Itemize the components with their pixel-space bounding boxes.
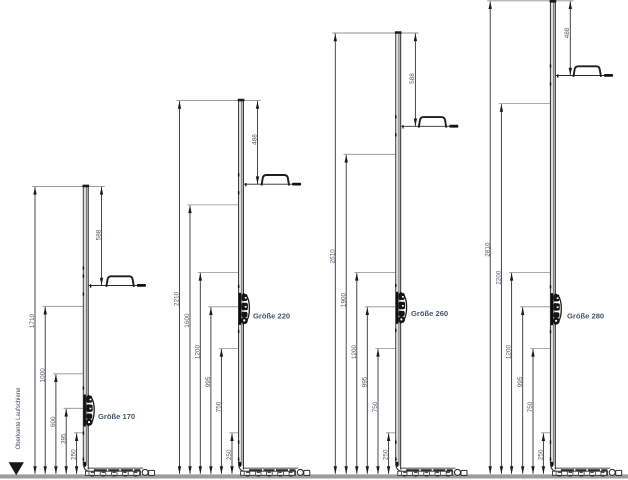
svg-text:600: 600 [50,416,57,427]
svg-text:995: 995 [361,376,368,387]
svg-text:488: 488 [564,27,571,38]
svg-text:2810: 2810 [484,242,491,257]
svg-text:Größe 220: Größe 220 [253,312,290,321]
svg-text:Größe 280: Größe 280 [567,312,604,321]
svg-text:250: 250 [226,449,233,460]
svg-text:1000: 1000 [39,368,46,383]
svg-text:Oberkante Laufschiene: Oberkante Laufschiene [16,387,22,450]
svg-text:1900: 1900 [340,292,347,307]
svg-text:588: 588 [409,73,416,84]
svg-text:750: 750 [216,401,223,412]
svg-text:995: 995 [517,376,524,387]
svg-text:2210: 2210 [174,291,181,306]
svg-text:588: 588 [95,229,102,240]
svg-text:750: 750 [372,401,379,412]
svg-text:395: 395 [60,433,67,444]
svg-text:2200: 2200 [496,270,503,285]
svg-text:1600: 1600 [184,313,191,328]
svg-text:250: 250 [383,449,390,460]
svg-text:1200: 1200 [351,344,358,359]
svg-text:1710: 1710 [29,313,36,328]
svg-text:2610: 2610 [329,249,336,264]
svg-text:1200: 1200 [194,344,201,359]
svg-text:488: 488 [251,134,258,145]
svg-text:1200: 1200 [506,344,513,359]
svg-text:250: 250 [71,449,78,460]
svg-text:Größe 170: Größe 170 [98,412,135,421]
svg-text:750: 750 [527,401,534,412]
svg-text:Größe 260: Größe 260 [411,309,448,318]
svg-text:250: 250 [538,449,545,460]
svg-text:995: 995 [205,376,212,387]
